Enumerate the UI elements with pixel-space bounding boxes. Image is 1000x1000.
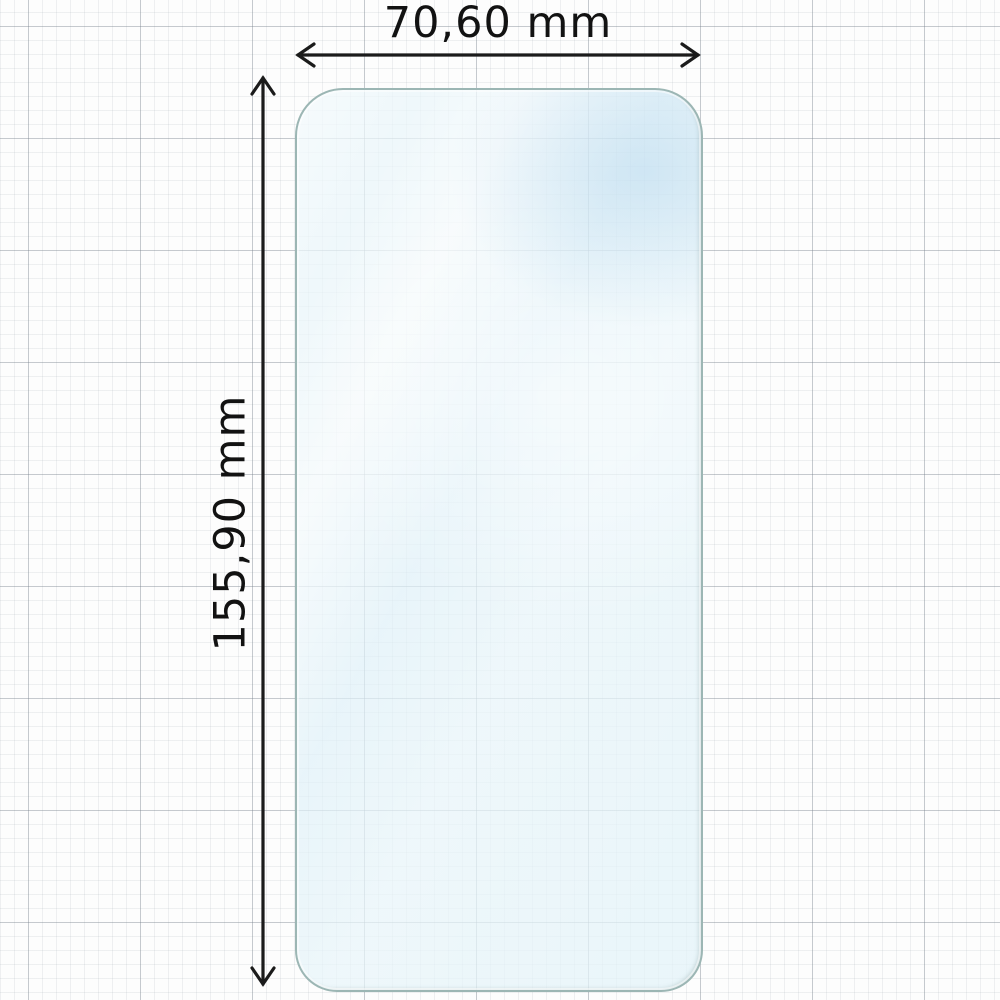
width-arrow-icon xyxy=(290,41,706,69)
width-dimension-label: 70,60 mm xyxy=(290,2,706,45)
height-arrow-icon xyxy=(249,70,277,992)
screen-protector xyxy=(295,88,703,992)
graph-paper-canvas: 70,60 mm 155,90 mm xyxy=(0,0,1000,1000)
height-dimension-label: 155,90 mm xyxy=(210,395,253,652)
